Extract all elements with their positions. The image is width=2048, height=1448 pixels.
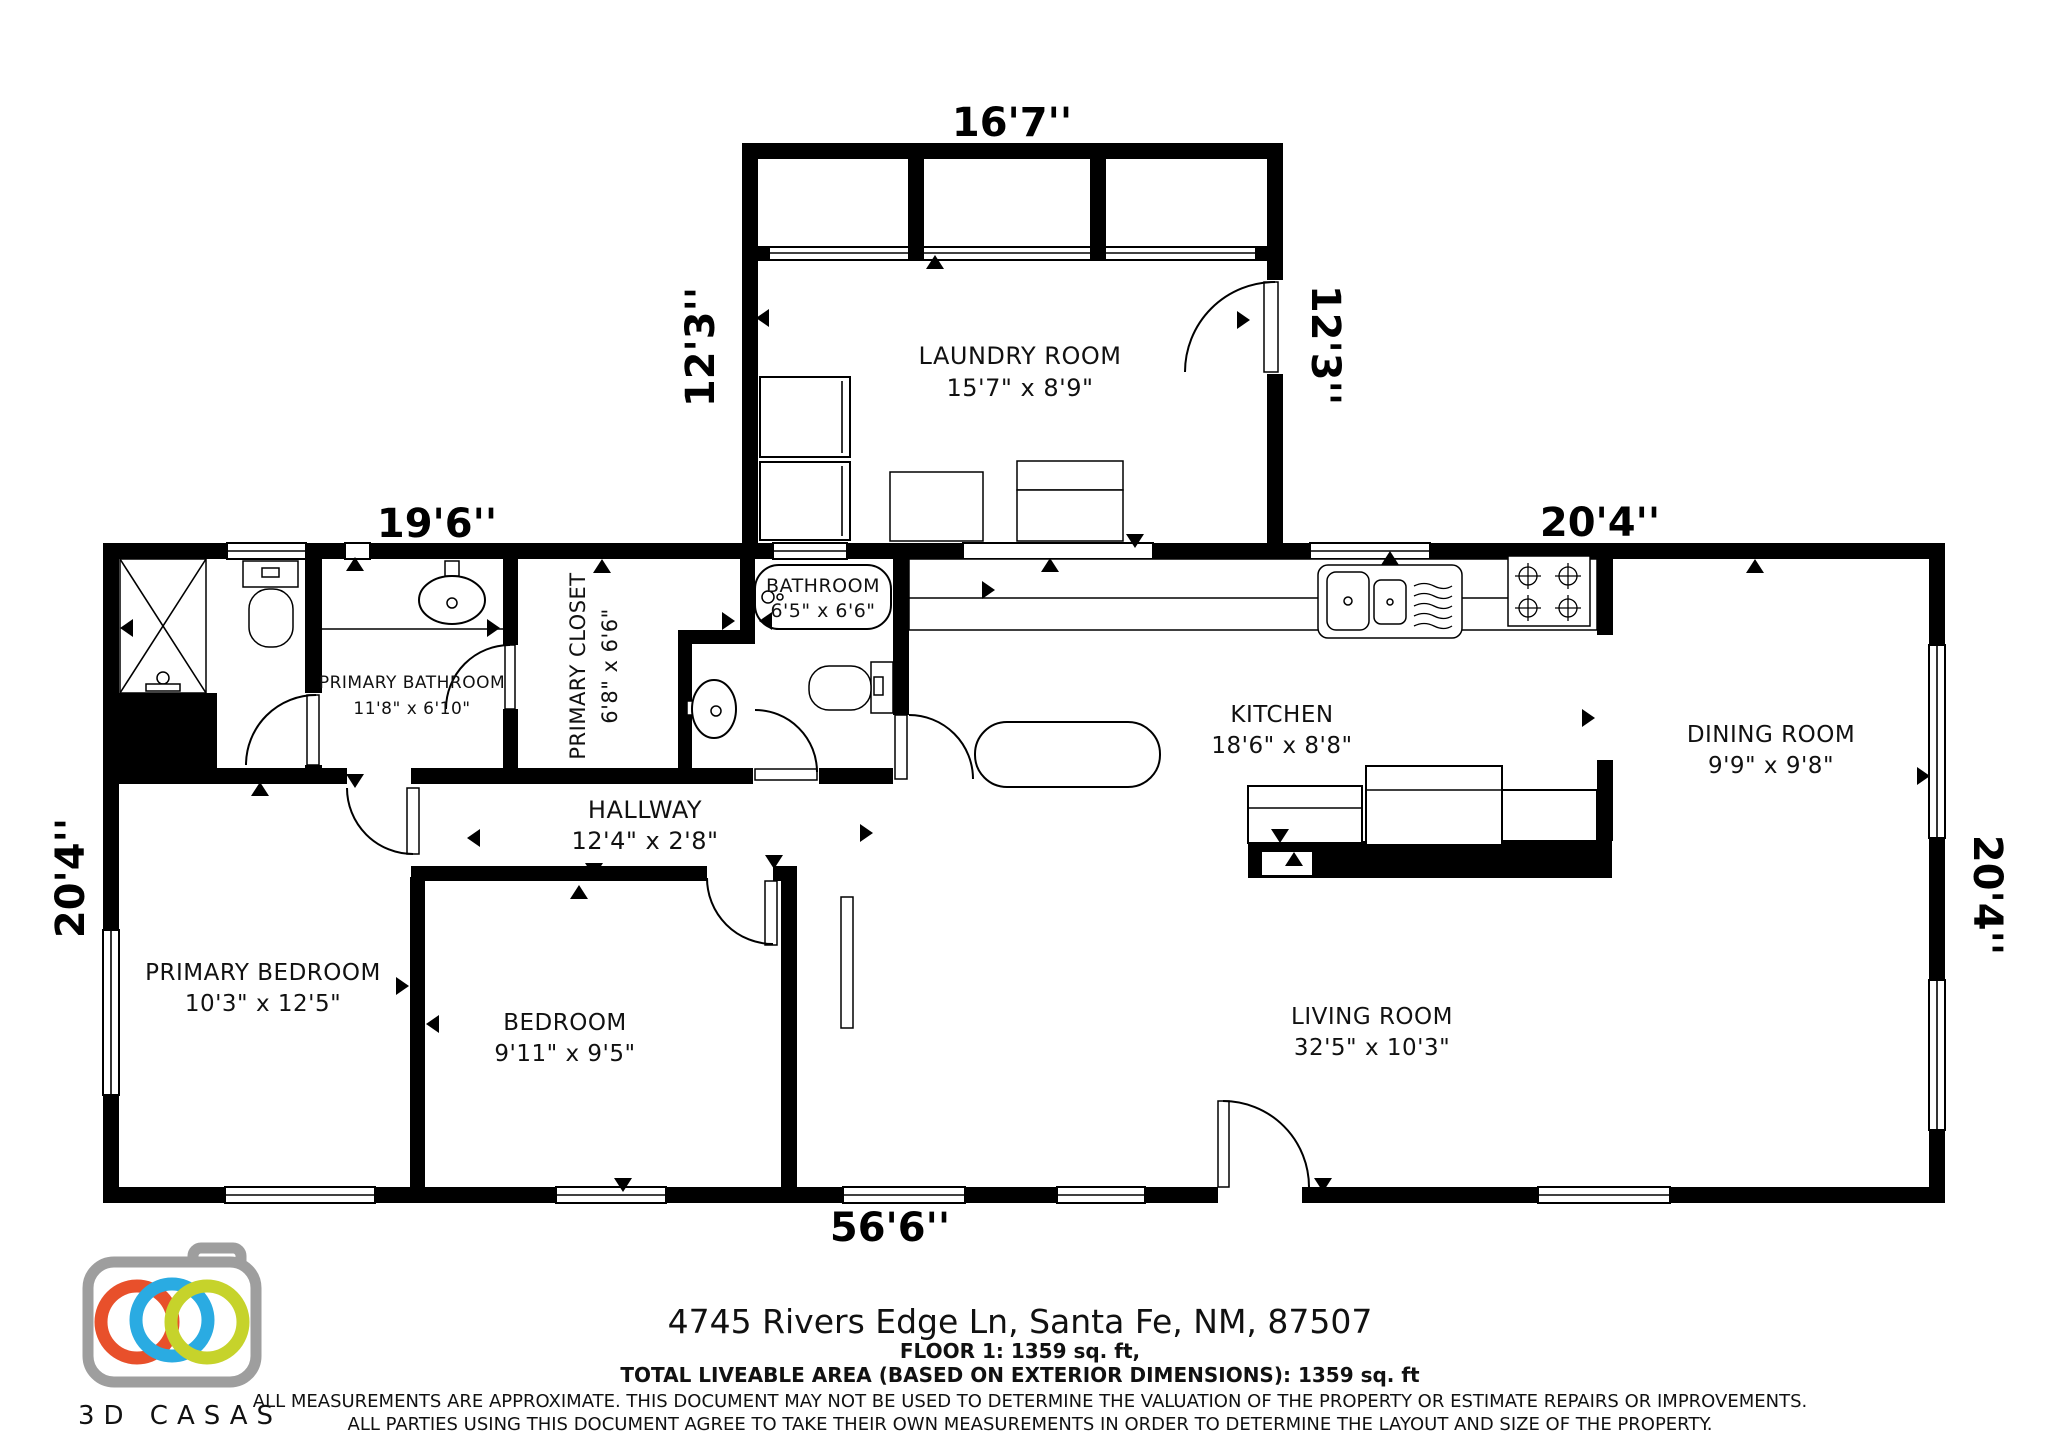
floor-plan-page: LAUNDRY ROOM 15'7" x 8'9" PRIMARY BATHRO… — [0, 0, 2048, 1448]
total-area-line: TOTAL LIVEABLE AREA (BASED ON EXTERIOR D… — [620, 1363, 1420, 1387]
window — [556, 1187, 666, 1203]
room-label-primary-bathroom: PRIMARY BATHROOM — [319, 673, 505, 693]
kitchen-hall-door — [893, 715, 973, 779]
room-labels: LAUNDRY ROOM 15'7" x 8'9" PRIMARY BATHRO… — [145, 342, 1855, 1067]
kitchen-sink — [1318, 565, 1462, 638]
room-label-dining: DINING ROOM — [1687, 722, 1855, 748]
room-dims-dining: 9'9" x 9'8" — [1708, 753, 1834, 779]
utility-cabinet — [890, 461, 1123, 541]
room-dims-living: 32'5" x 10'3" — [1294, 1035, 1450, 1061]
closet-track — [758, 241, 1267, 260]
dryer — [760, 462, 850, 540]
dim-bottom: 56'6'' — [830, 1205, 950, 1251]
room-dims-laundry: 15'7" x 8'9" — [946, 374, 1093, 402]
closet-door-leaf — [841, 897, 853, 1028]
logo-text: 3D CASAS — [78, 1401, 282, 1431]
room-dims-bathroom: 6'5" x 6'6" — [770, 600, 875, 622]
window — [1929, 980, 1945, 1130]
disclaimer-line-2: ALL PARTIES USING THIS DOCUMENT AGREE TO… — [348, 1414, 1713, 1435]
room-label-living: LIVING ROOM — [1291, 1004, 1453, 1030]
bathroom-door — [753, 710, 819, 784]
logo-3d-casas: 3D CASAS — [78, 1248, 282, 1431]
toilet — [809, 662, 893, 713]
window — [345, 543, 370, 559]
dim-laundry-left: 12'3'' — [678, 287, 724, 407]
dim-laundry-top: 16'7'' — [952, 100, 1072, 146]
bathroom-sink — [687, 680, 736, 738]
laundry-exterior-door — [1185, 280, 1283, 374]
kitchen-peninsula — [975, 722, 1160, 787]
room-label-kitchen: KITCHEN — [1230, 702, 1333, 728]
property-address: 4745 Rivers Edge Ln, Santa Fe, NM, 87507 — [668, 1302, 1373, 1341]
window — [1929, 645, 1945, 838]
window — [225, 1187, 375, 1203]
stove — [1508, 556, 1590, 626]
washer — [760, 377, 850, 457]
room-dims-primary-closet: 6'8" x 6'6" — [598, 608, 622, 724]
dim-laundry-right: 12'3'' — [1302, 285, 1348, 405]
dim-top-right: 20'4'' — [1540, 500, 1660, 546]
dim-right: 20'4'' — [1964, 835, 2010, 955]
room-label-bedroom: BEDROOM — [503, 1010, 627, 1036]
room-dims-bedroom: 9'11" x 9'5" — [494, 1041, 635, 1067]
floor-area-line: FLOOR 1: 1359 sq. ft, — [900, 1339, 1140, 1363]
kitchen-island — [1248, 766, 1597, 845]
primary-bathroom-door — [246, 693, 322, 765]
window — [227, 543, 306, 559]
floor-plan: LAUNDRY ROOM 15'7" x 8'9" PRIMARY BATHRO… — [0, 0, 2048, 1448]
window — [1057, 1187, 1145, 1203]
window — [773, 543, 847, 559]
room-label-hallway: HALLWAY — [588, 796, 702, 824]
room-label-laundry: LAUNDRY ROOM — [919, 342, 1122, 370]
dim-left: 20'4'' — [48, 818, 94, 938]
kitchen-counter — [909, 559, 1597, 630]
room-label-bathroom: BATHROOM — [766, 575, 880, 597]
room-dims-primary-bedroom: 10'3" x 12'5" — [185, 991, 341, 1017]
room-label-primary-bedroom: PRIMARY BEDROOM — [145, 960, 381, 986]
disclaimer-line-1: ALL MEASUREMENTS ARE APPROXIMATE. THIS D… — [253, 1391, 1807, 1412]
window — [1538, 1187, 1670, 1203]
room-label-primary-closet: PRIMARY CLOSET — [566, 572, 590, 759]
window — [103, 930, 119, 1095]
room-dims-primary-bathroom: 11'8" x 6'10" — [353, 699, 470, 719]
room-dims-hallway: 12'4" x 2'8" — [571, 827, 718, 855]
dim-top-left: 19'6'' — [377, 501, 497, 547]
wall-opening — [963, 543, 1153, 559]
bedroom-door — [707, 866, 777, 945]
footer: 4745 Rivers Edge Ln, Santa Fe, NM, 87507… — [253, 1302, 1807, 1435]
vanity-sink — [322, 561, 503, 629]
room-dims-kitchen: 18'6" x 8'8" — [1211, 733, 1352, 759]
window — [843, 1187, 965, 1203]
entry-door — [1218, 1101, 1309, 1203]
toilet — [243, 561, 298, 647]
window — [1310, 543, 1430, 559]
